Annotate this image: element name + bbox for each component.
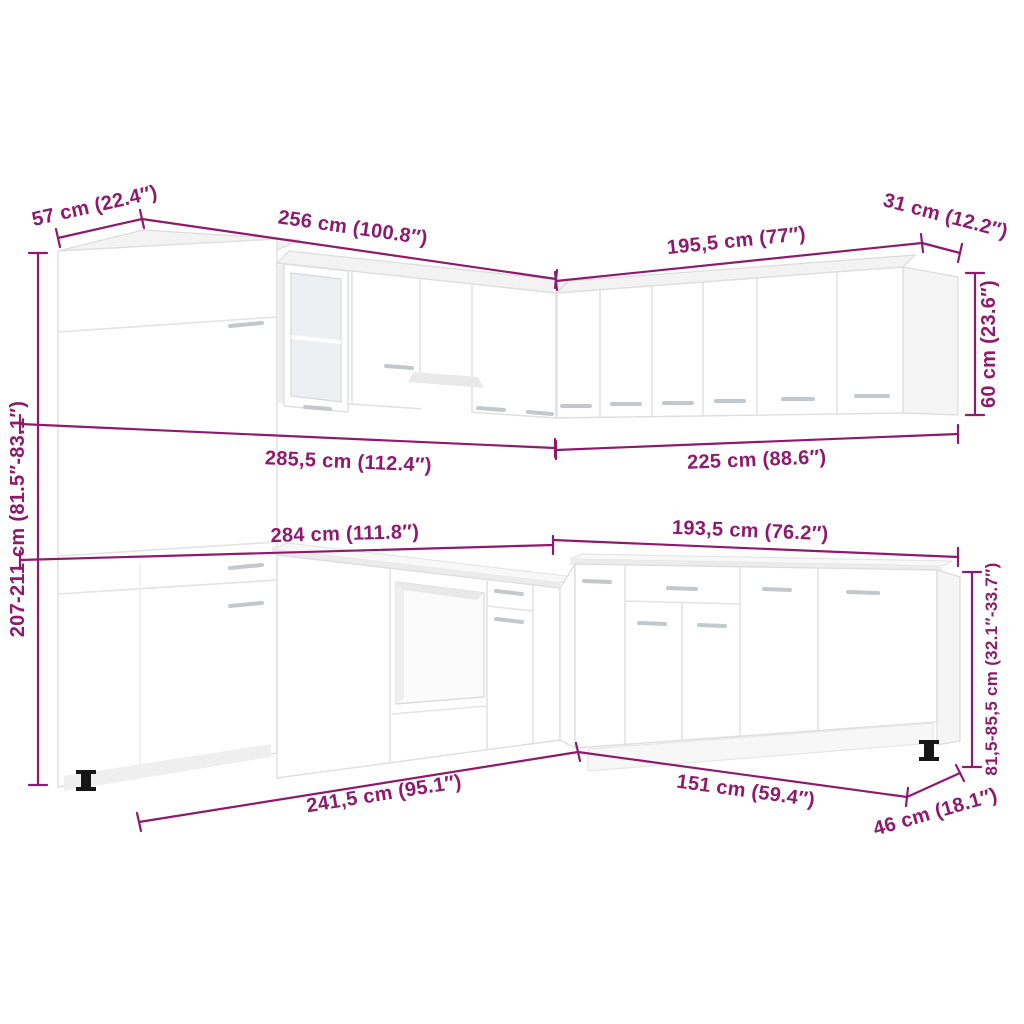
dim-label-base-left-total: 284 cm (111.8″) [270,521,419,547]
dimension-wall-height: 60 cm (23.6″) [966,273,1000,415]
dim-label-upper-right-total: 225 cm (88.6″) [687,446,827,474]
diagram-canvas: 57 cm (22.4″) 256 cm (100.8″) 195,5 cm (… [0,0,1024,1024]
cabinet-foot-right [919,740,939,761]
dimension-base-height: 81,5-85,5 cm (32.1″-33.7″) [963,562,1001,775]
tall-cabinet-front [58,239,277,787]
base-right-handle-2 [764,589,790,590]
dim-label-upper-left-total: 285,5 cm (112.4″) [264,447,432,477]
oven-cavity-left-face [396,582,404,704]
dimension-wall-depth: 31 cm (12.2″) [881,189,1010,262]
dim-label-wall-height: 60 cm (23.6″) [978,280,1000,408]
wall-left-handle-2 [478,408,504,410]
base-right-handle-3 [848,592,878,593]
base-right-door-handle-1 [639,623,665,624]
base-right-drawer-handle [668,588,696,589]
dim-label-base-right-run: 151 cm (59.4″) [675,771,816,812]
dim-label-base-left-run: 241,5 cm (95.1″) [305,771,463,818]
dim-label-base-right-total: 193,5 cm (76.2″) [672,517,829,546]
kitchen-dimension-diagram: 57 cm (22.4″) 256 cm (100.8″) 195,5 cm (… [0,0,1024,1024]
dim-label-base-height: 81,5-85,5 cm (32.1″-33.7″) [982,562,1001,775]
dimension-upper-right-total: 225 cm (88.6″) [556,425,958,474]
base-right-handle-1 [584,581,610,582]
wall-left-handle-3 [528,412,552,414]
wall-left-handle-1 [386,366,412,368]
base-right-end-panel [937,570,960,745]
dim-label-upper-left-run: 256 cm (100.8″) [277,206,429,249]
dimension-base-depth: 46 cm (18.1″) [871,765,1000,840]
base-right-front [575,564,937,748]
dim-label-upper-right-run: 195,5 cm (77″) [666,223,807,259]
wall-right-end-panel [903,267,958,415]
glass-cabinet-handle [305,407,330,409]
dim-label-wall-depth: 31 cm (12.2″) [881,189,1010,243]
dimension-total-height: 207-211 cm (81.5″-83.1″) [7,253,47,785]
base-right-door-handle-2 [699,625,725,626]
dim-label-tall-depth: 57 cm (22.4″) [30,181,160,231]
dim-label-base-depth: 46 cm (18.1″) [871,784,1000,840]
dim-label-total-height: 207-211 cm (81.5″-83.1″) [7,401,29,638]
oven-cavity [396,582,484,704]
wall-left-filler [277,265,284,403]
wall-right-front [557,267,903,418]
base-corner [560,564,575,748]
